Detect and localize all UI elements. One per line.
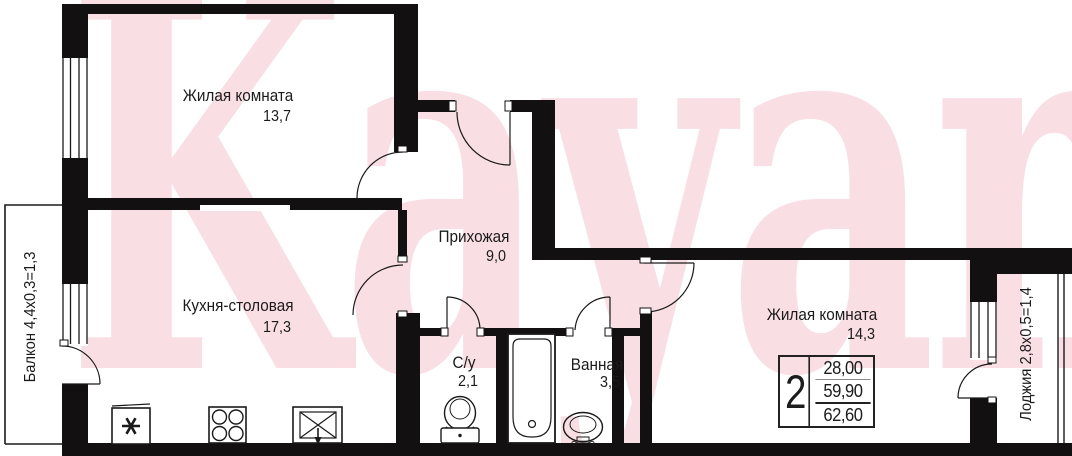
living-area-cell: 28,00 — [815, 357, 870, 380]
door-living2 — [644, 263, 694, 312]
room-label-bathroom: Ванная — [571, 355, 623, 375]
room-area-hallway: 9,0 — [486, 248, 506, 266]
room-label-hallway: Прихожая — [439, 227, 510, 247]
room-count-cell: 2 — [783, 357, 810, 426]
room-area-kitchen: 17,3 — [263, 319, 291, 337]
kitchen-sink-icon — [293, 407, 342, 445]
apartment-info-table: 2 28,00 59,90 62,60 — [778, 355, 875, 428]
floor-plan-drawing — [0, 0, 1072, 456]
door-entrance — [457, 112, 510, 165]
room-label-living2: Жилая комната — [767, 305, 878, 325]
loggia-walls — [1058, 274, 1064, 443]
room-label-kitchen: Кухня-столовая — [182, 296, 293, 316]
door-living1 — [357, 152, 403, 198]
window-kitchen — [62, 284, 88, 346]
total-area-cell: 62,60 — [815, 404, 870, 426]
fridge-icon — [112, 404, 150, 444]
room-label-wc: С/у — [453, 353, 476, 373]
window-living1 — [62, 58, 88, 158]
room-area-wc: 2,1 — [458, 373, 478, 391]
fixtures — [112, 334, 603, 446]
walls — [62, 4, 1072, 456]
door-kitchen — [353, 265, 403, 315]
door-bathroom — [575, 297, 610, 330]
room-label-living1: Жилая комната — [183, 86, 294, 106]
washbasin-icon — [564, 413, 603, 446]
door-balcony — [62, 346, 100, 384]
door-wc — [447, 297, 480, 330]
room-area-living1: 13,7 — [263, 108, 291, 126]
toilet-icon — [441, 397, 479, 444]
balcony-annotation: Балкон 4,4х0,3=1,3 — [22, 252, 40, 383]
stove-icon — [209, 407, 246, 443]
room-area-bathroom: 3,5 — [600, 374, 620, 392]
reduced-area-cell: 59,90 — [815, 380, 870, 404]
bathtub-icon — [508, 334, 555, 443]
room-area-living2: 14,3 — [847, 326, 875, 344]
door-loggia — [958, 364, 992, 398]
loggia-annotation: Лоджия 2,8х0,5=1,4 — [1018, 287, 1036, 421]
floor-plan-canvas: Kayan — [0, 0, 1072, 456]
window-loggia — [970, 302, 997, 360]
